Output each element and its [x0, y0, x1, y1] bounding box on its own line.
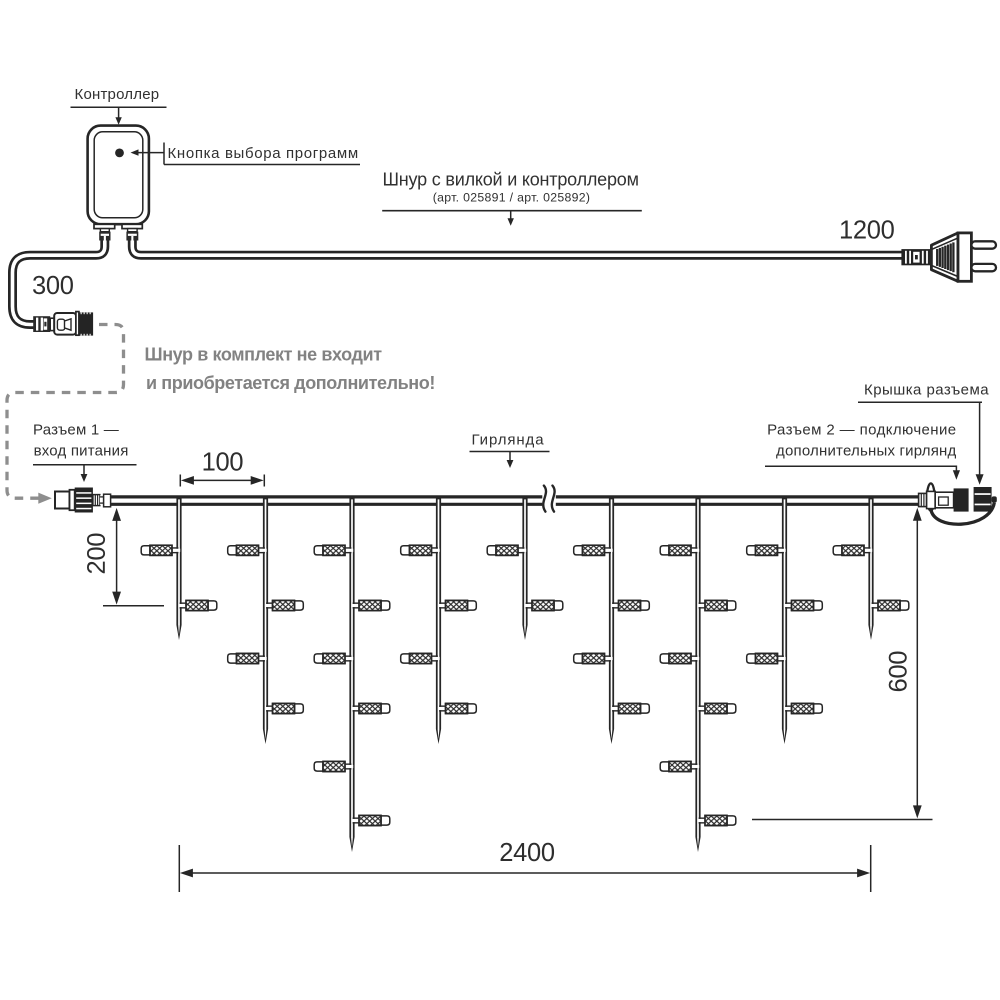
svg-text:300: 300 — [32, 272, 74, 300]
svg-text:Разъем 2 — подключение: Разъем 2 — подключение — [767, 421, 956, 438]
svg-text:1200: 1200 — [839, 217, 895, 245]
svg-text:и приобретается дополнительно!: и приобретается дополнительно! — [146, 373, 435, 393]
svg-text:Шнур с вилкой и контроллером: Шнур с вилкой и контроллером — [383, 169, 639, 189]
svg-text:100: 100 — [202, 448, 244, 476]
svg-text:Крышка разъема: Крышка разъема — [864, 382, 989, 399]
svg-text:Шнур в комплект не входит: Шнур в комплект не входит — [145, 345, 383, 365]
svg-text:2400: 2400 — [499, 839, 555, 867]
svg-text:Гирлянда: Гирлянда — [472, 431, 545, 448]
svg-text:Контроллер: Контроллер — [75, 86, 160, 103]
svg-text:Кнопка выбора программ: Кнопка выбора программ — [168, 145, 359, 162]
svg-text:вход питания: вход питания — [34, 443, 129, 460]
svg-text:(арт. 025891 / арт. 025892): (арт. 025891 / арт. 025892) — [433, 191, 591, 205]
svg-text:дополнительных гирлянд: дополнительных гирлянд — [776, 443, 957, 460]
svg-text:Разъем 1 —: Разъем 1 — — [33, 422, 119, 439]
